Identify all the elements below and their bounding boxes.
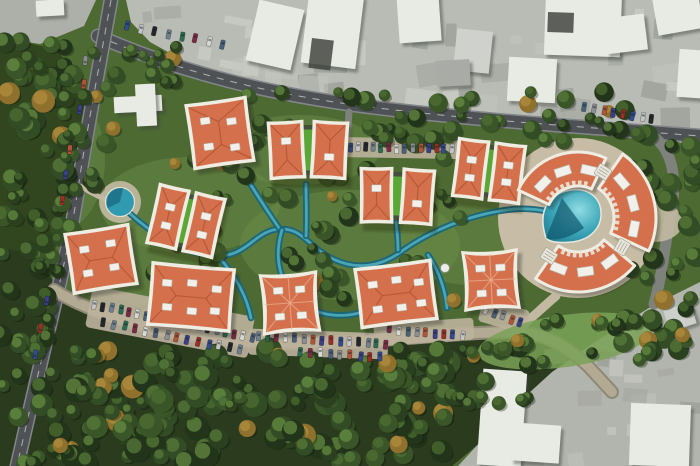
roof-dormer bbox=[226, 117, 236, 125]
car bbox=[648, 114, 653, 124]
roof-dormer bbox=[477, 290, 487, 297]
car bbox=[329, 335, 333, 344]
car bbox=[386, 142, 391, 152]
roof-dormer bbox=[414, 278, 424, 286]
villa-1 bbox=[184, 95, 260, 176]
car bbox=[441, 144, 446, 153]
car bbox=[423, 327, 428, 337]
car bbox=[366, 338, 372, 348]
roof-dormer bbox=[212, 285, 222, 293]
car bbox=[83, 56, 88, 66]
car bbox=[433, 329, 438, 339]
roof-dormer bbox=[467, 156, 477, 164]
roof-dormer bbox=[475, 265, 485, 272]
car bbox=[297, 347, 302, 357]
roof-dormer bbox=[187, 279, 197, 287]
car bbox=[378, 143, 383, 153]
car bbox=[434, 143, 439, 153]
roof-dormer bbox=[412, 200, 422, 207]
roof-dormer bbox=[495, 264, 505, 271]
pair-wing bbox=[309, 120, 349, 181]
context-building bbox=[676, 49, 700, 99]
car bbox=[338, 337, 343, 347]
context-building bbox=[602, 14, 648, 55]
pair-wing bbox=[360, 167, 394, 224]
car bbox=[319, 336, 324, 346]
car bbox=[363, 142, 368, 152]
context-building bbox=[135, 84, 157, 127]
roof-dormer bbox=[297, 311, 307, 318]
car bbox=[450, 144, 455, 154]
roof-dormer bbox=[281, 137, 291, 144]
car bbox=[63, 170, 69, 180]
car bbox=[356, 337, 361, 346]
car bbox=[337, 350, 342, 360]
roof-dormer bbox=[501, 178, 511, 186]
roof-dormer bbox=[162, 279, 172, 287]
roof-dormer bbox=[497, 289, 507, 296]
context-building bbox=[36, 0, 65, 17]
roof-dormer bbox=[503, 161, 513, 169]
roof-dormer bbox=[162, 303, 172, 311]
roof-dormer bbox=[324, 153, 334, 160]
villa-5 bbox=[353, 258, 444, 335]
villa-2 bbox=[63, 222, 144, 300]
car bbox=[371, 142, 376, 152]
context-building bbox=[511, 422, 562, 463]
villa-6 bbox=[461, 248, 525, 317]
roof-dormer bbox=[464, 174, 474, 182]
car bbox=[318, 348, 322, 357]
car bbox=[33, 350, 39, 360]
pair-wing bbox=[399, 167, 437, 226]
car bbox=[81, 79, 87, 89]
roof-dormer bbox=[105, 239, 116, 247]
car bbox=[347, 337, 352, 347]
car bbox=[442, 329, 447, 339]
roof-dormer bbox=[295, 286, 305, 293]
car bbox=[450, 330, 455, 340]
car bbox=[402, 144, 406, 153]
context-building bbox=[396, 0, 441, 43]
roof-dormer bbox=[416, 299, 426, 307]
pair-3 bbox=[450, 136, 531, 213]
car bbox=[383, 340, 388, 350]
roof-dormer bbox=[79, 245, 90, 253]
car bbox=[394, 144, 398, 153]
car bbox=[308, 348, 312, 357]
roof-dormer bbox=[187, 307, 197, 315]
car bbox=[373, 338, 378, 348]
car bbox=[419, 143, 424, 153]
pair-1 bbox=[266, 120, 351, 187]
car bbox=[347, 350, 352, 360]
car bbox=[378, 352, 383, 361]
roof-dormer bbox=[373, 305, 383, 313]
roof-terrace bbox=[577, 266, 594, 277]
car bbox=[311, 335, 316, 345]
roof-dormer bbox=[273, 287, 283, 294]
context-building bbox=[629, 403, 691, 466]
car bbox=[415, 327, 421, 337]
roof-dormer bbox=[204, 143, 214, 151]
car bbox=[60, 195, 65, 205]
villa-4 bbox=[258, 270, 326, 341]
pair-2 bbox=[357, 166, 439, 234]
pair-wing bbox=[266, 120, 306, 181]
context-building bbox=[435, 59, 470, 87]
roof-dormer bbox=[210, 307, 220, 315]
car bbox=[329, 349, 333, 358]
car bbox=[367, 352, 371, 361]
car bbox=[411, 143, 415, 152]
site-plan-image bbox=[0, 0, 700, 466]
car bbox=[256, 331, 261, 341]
gazebo bbox=[441, 264, 450, 273]
roof-dormer bbox=[275, 313, 285, 320]
car bbox=[358, 351, 364, 361]
car bbox=[356, 142, 361, 152]
roof-dormer bbox=[83, 269, 94, 277]
car bbox=[610, 108, 615, 118]
roof-dormer bbox=[109, 263, 120, 271]
car bbox=[67, 145, 72, 155]
villa-3 bbox=[145, 261, 240, 338]
roof-dormer bbox=[230, 143, 240, 151]
roof-dormer bbox=[372, 185, 382, 192]
roof-dormer bbox=[391, 276, 401, 284]
roof-dormer bbox=[396, 303, 406, 311]
car bbox=[426, 143, 431, 153]
roof-dormer bbox=[368, 281, 378, 289]
roof-dormer bbox=[200, 117, 210, 125]
